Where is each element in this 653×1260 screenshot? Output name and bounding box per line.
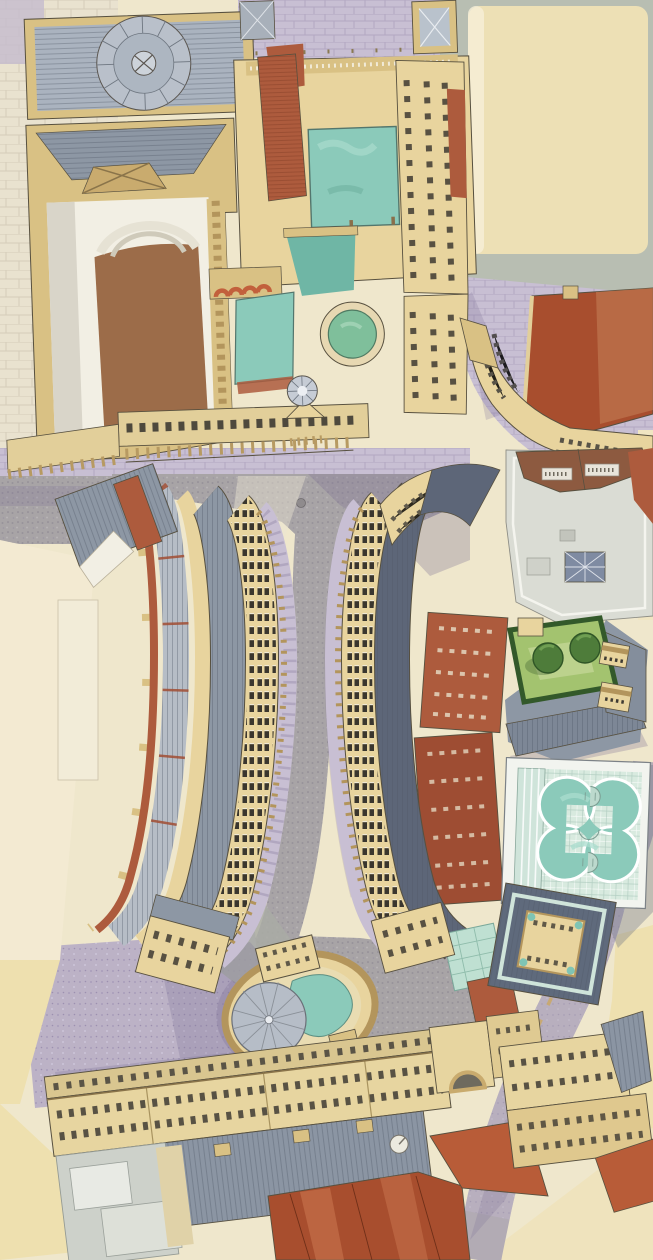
garden-north-pavilion [518, 618, 543, 636]
great-bath-pool [308, 126, 399, 227]
modern-spa-building [506, 448, 653, 624]
dormer-1 [214, 1143, 231, 1157]
west-court-wall [58, 600, 98, 780]
roof-balustrade-2 [585, 464, 619, 476]
dormer-3 [356, 1119, 373, 1133]
aerial-illustration [0, 0, 653, 1260]
great-bath-terrace [200, 0, 481, 423]
arcade-wall [209, 267, 282, 299]
rooftop-unit-2 [527, 558, 550, 575]
corner-roof-light-wash [596, 288, 653, 424]
illustration-canvas [0, 0, 653, 1260]
roof-notch-block [563, 286, 578, 299]
quatrefoil-pool [535, 775, 643, 885]
garden-courtyard [505, 618, 648, 762]
circular-bath-pool [328, 309, 378, 359]
hot-bath-courtyard [518, 911, 585, 976]
east-brick-wing-north [420, 612, 508, 732]
concert-hall [24, 11, 255, 119]
rooftop-unit [560, 530, 575, 541]
court-volume-1 [70, 1161, 133, 1210]
hot-bath [488, 883, 616, 1005]
pale-yard-block [468, 6, 648, 254]
skylight-grid [565, 552, 605, 582]
statue-figure-2 [391, 217, 395, 225]
kings-bath-pool [232, 292, 297, 384]
dormer-2 [293, 1129, 310, 1143]
garden-tree-2 [570, 633, 600, 663]
garden-pavilion-2 [598, 682, 633, 712]
plaza-manhole [297, 499, 306, 508]
garden-tree-1 [533, 643, 563, 673]
